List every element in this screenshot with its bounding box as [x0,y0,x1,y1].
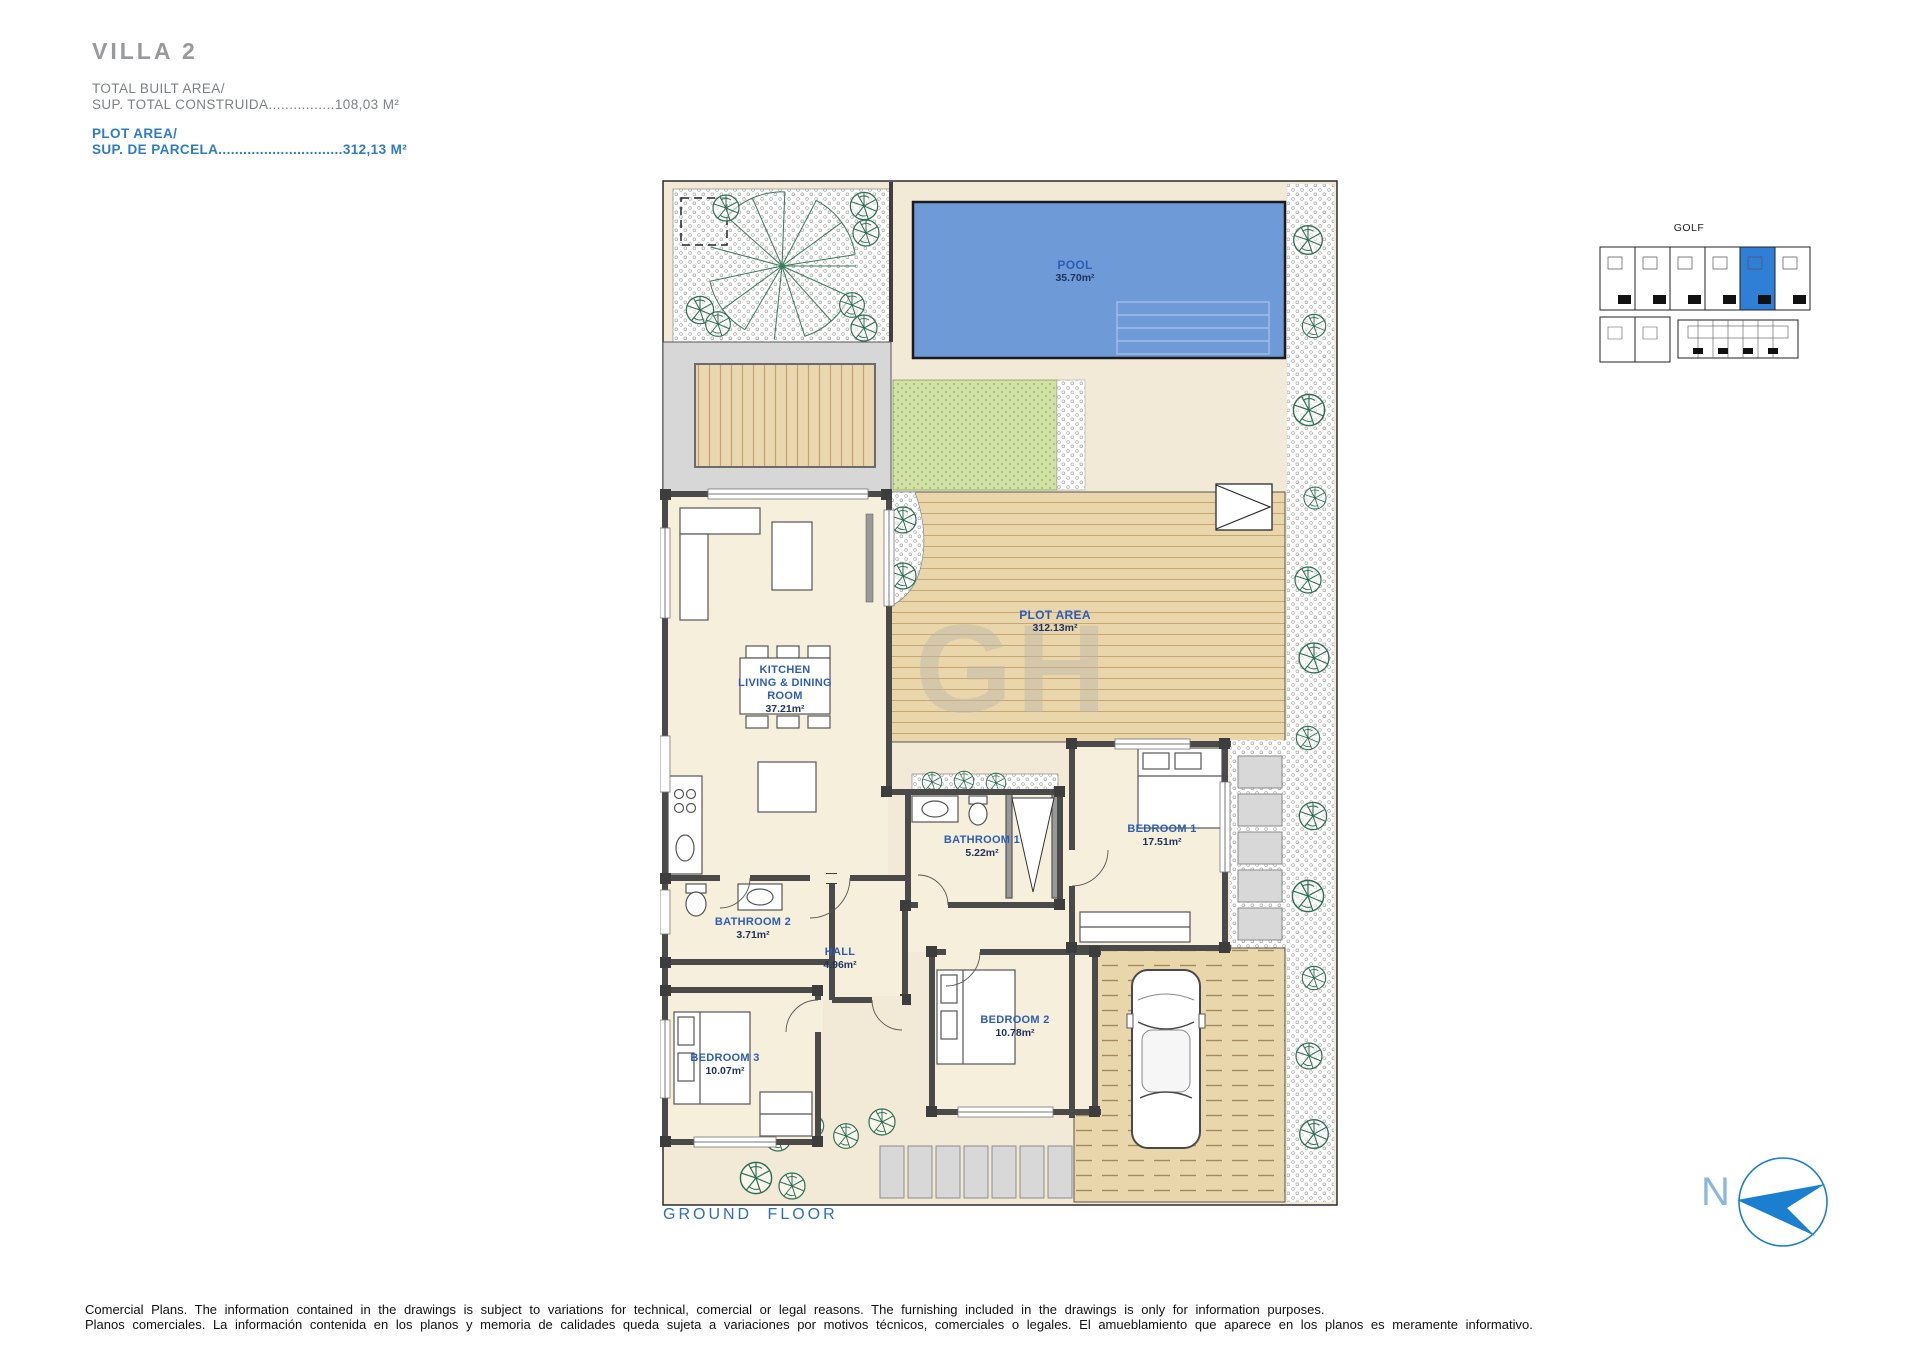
gravel-strip-small [1057,380,1085,490]
paving-slabs-column [1230,740,1287,954]
north-arrow-icon [1695,1148,1865,1268]
grass-patch [893,380,1057,490]
gate-symbol [1216,484,1272,530]
floor-plan: GH POOL 35.70m² PLOT AREA 312.13m² KITCH… [660,178,1340,1208]
built-area-label-es: SUP. TOTAL CONSTRUIDA [92,97,268,112]
site-plan-golf-label: GOLF [1593,222,1785,234]
built-area-label-en: TOTAL BUILT AREA/ [92,81,225,96]
compass: N [1695,1148,1865,1268]
plot-area-block: PLOT AREA/ SUP. DE PARCELA..............… [92,126,407,158]
built-area-value: 108,03 M² [335,97,399,112]
bottom-path-slabs [880,1146,1072,1198]
car [1127,970,1205,1148]
plot-area-value: 312,13 M² [343,142,407,157]
carport [1074,948,1285,1202]
plot-area-label-es: SUP. DE PARCELA [92,142,218,157]
wood-deck-terrace [663,342,891,492]
built-area-block: TOTAL BUILT AREA/ SUP. TOTAL CONSTRUIDA.… [92,81,407,113]
disclaimer-line-es: Planos comerciales. La información conte… [85,1318,1845,1333]
plan-sheet: VILLA 2 TOTAL BUILT AREA/ SUP. TOTAL CON… [0,0,1920,1366]
built-area-dots: ................ [268,97,334,112]
page-title: VILLA 2 [92,38,407,65]
pool [913,202,1285,358]
disclaimer: Comercial Plans. The information contain… [85,1303,1845,1332]
plot-area-dots: .............................. [218,142,343,157]
header: VILLA 2 TOTAL BUILT AREA/ SUP. TOTAL CON… [92,38,407,158]
floor-plan-drawing [660,178,1340,1208]
site-plan: GOLF [1593,222,1813,364]
site-plan-drawing [1593,238,1813,364]
floor-title: GROUND FLOOR [663,1206,838,1224]
side-garden-strip [1287,184,1334,1202]
plot-area-label-en: PLOT AREA/ [92,126,177,141]
gravel-garden [673,189,891,342]
disclaimer-line-en: Comercial Plans. The information contain… [85,1303,1845,1318]
